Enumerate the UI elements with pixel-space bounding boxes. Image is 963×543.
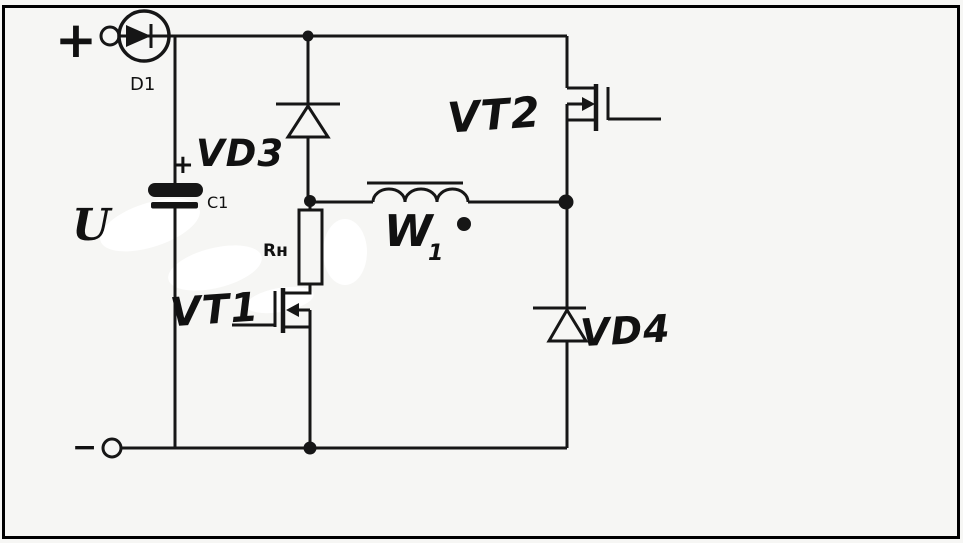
vt2-mosfet: [567, 84, 661, 131]
inductor-coil-icon: [373, 189, 468, 202]
vt1-label: VT1: [169, 284, 261, 336]
capacitor-plate-icon: [151, 202, 198, 209]
circuit-schematic: + − D1 + C1 U VD3 Rн VT1 VT2 W 1 VD4: [0, 0, 963, 543]
vd3-diode: [276, 36, 340, 201]
source-voltage-label: U: [72, 200, 113, 251]
c1-label: C1: [207, 193, 228, 212]
d1-label: D1: [130, 74, 155, 95]
scanned-schematic-page: + − D1 + C1 U VD3 Rн VT1 VT2 W 1 VD4: [0, 0, 963, 543]
rn-label: Rн: [263, 241, 288, 261]
w1-subscript-label: 1: [428, 241, 444, 266]
positive-terminal: [101, 27, 119, 45]
capacitor-plate-icon: [148, 183, 203, 197]
resistor-body-icon: [299, 210, 322, 284]
c1-polarity-label: +: [172, 150, 194, 180]
vd3-label: VD3: [196, 132, 284, 175]
positive-terminal-label: +: [55, 11, 97, 69]
terminal-circle-icon: [103, 439, 121, 457]
winding-polarity-dot-icon: [457, 217, 471, 231]
diode-triangle-icon: [288, 106, 328, 137]
vd4-label: VD4: [579, 306, 672, 355]
vd4-diode: [533, 308, 586, 341]
diode-arrow-icon: [126, 25, 151, 47]
c1-capacitor: [148, 183, 203, 209]
negative-terminal: [103, 439, 121, 457]
mosfet-arrow-icon: [582, 97, 595, 111]
terminal-circle-icon: [101, 27, 119, 45]
negative-terminal-label: −: [72, 430, 97, 465]
rn-resistor: [299, 210, 322, 284]
vt2-label: VT2: [446, 87, 543, 142]
